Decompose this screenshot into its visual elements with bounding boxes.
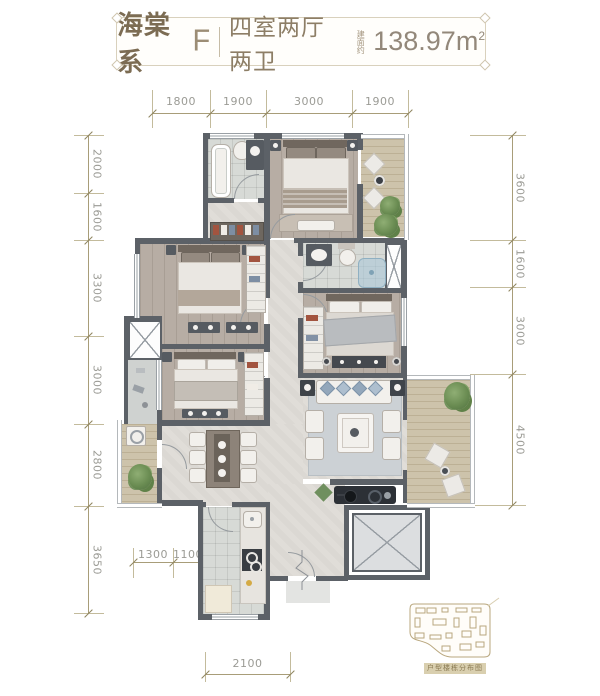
wardrobe-item bbox=[306, 335, 318, 341]
tv-console bbox=[332, 356, 386, 368]
bed-headboard bbox=[174, 352, 236, 359]
closet-item bbox=[253, 225, 259, 235]
wall bbox=[203, 203, 208, 243]
dim-label-right-2: 3000 bbox=[514, 316, 527, 346]
wardrobe-item bbox=[247, 384, 258, 390]
bed-blanket bbox=[323, 315, 397, 347]
utility-item bbox=[142, 402, 148, 408]
toilet bbox=[339, 249, 356, 266]
plate bbox=[218, 455, 226, 463]
balcony-rail bbox=[407, 503, 475, 508]
dim-extension bbox=[210, 90, 211, 128]
wardrobe-item bbox=[306, 315, 318, 321]
closet-item bbox=[213, 225, 219, 235]
bed-bench bbox=[297, 220, 335, 231]
refrigerator bbox=[205, 585, 232, 613]
balcony-rail bbox=[117, 503, 162, 508]
dim-label-right-3: 4500 bbox=[514, 425, 527, 455]
wall bbox=[357, 184, 363, 240]
dim-line-top bbox=[152, 113, 408, 114]
table-tray bbox=[350, 428, 359, 437]
dim-label-top-2: 3000 bbox=[294, 95, 324, 108]
window bbox=[282, 133, 344, 139]
wall bbox=[203, 502, 206, 507]
wall bbox=[258, 614, 270, 620]
dining-chair bbox=[240, 450, 257, 465]
stool bbox=[322, 357, 331, 366]
plate bbox=[218, 469, 226, 477]
nightstand bbox=[166, 245, 176, 255]
key-plan-inset bbox=[400, 596, 500, 668]
dim-label-left-3: 3000 bbox=[91, 365, 104, 395]
armchair bbox=[305, 437, 324, 460]
dining-chair bbox=[240, 432, 257, 447]
dim-extension bbox=[290, 652, 291, 682]
wall bbox=[268, 576, 288, 581]
bed-blanket bbox=[174, 381, 238, 401]
nightstand bbox=[270, 140, 281, 151]
stool bbox=[392, 357, 401, 366]
bed-headboard bbox=[178, 245, 240, 252]
wall bbox=[264, 324, 270, 349]
window bbox=[156, 358, 162, 410]
master-bed-throw bbox=[283, 188, 347, 208]
utility-item bbox=[136, 368, 145, 373]
dim-extension bbox=[470, 240, 526, 241]
balcony-rail bbox=[117, 420, 122, 508]
closet-item bbox=[245, 225, 251, 235]
storage-bench bbox=[188, 322, 220, 333]
window bbox=[212, 614, 258, 620]
dim-label-bottom-0: 2100 bbox=[233, 657, 263, 670]
dim-label-bottom-upper-0: 1300 bbox=[138, 548, 168, 561]
unit-code: F bbox=[193, 24, 211, 59]
dim-line-bottom-upper bbox=[133, 562, 203, 563]
title-banner: 海棠系 F 四室两厅两卫 建面约 138.97m2 bbox=[116, 17, 486, 66]
dim-line-bottom bbox=[205, 674, 290, 675]
wardrobe-item bbox=[247, 362, 258, 368]
master-bed-headboard bbox=[283, 140, 347, 147]
armchair bbox=[382, 410, 401, 433]
dim-extension bbox=[352, 90, 353, 128]
dim-extension bbox=[470, 505, 526, 506]
window bbox=[134, 254, 140, 318]
balcony-rail bbox=[407, 375, 475, 380]
elevator-shaft bbox=[352, 513, 422, 572]
balcony-table bbox=[374, 175, 385, 186]
sink-basin bbox=[311, 249, 327, 261]
dim-extension bbox=[470, 287, 526, 288]
side-table bbox=[300, 380, 315, 396]
dim-label-left-2: 3300 bbox=[91, 273, 104, 303]
wall bbox=[303, 373, 407, 378]
bed-throw bbox=[178, 290, 240, 306]
bed-duvet bbox=[178, 262, 242, 314]
balcony-rail bbox=[361, 134, 409, 139]
wardrobe-item bbox=[249, 256, 260, 262]
wall bbox=[160, 500, 203, 506]
wall bbox=[264, 378, 270, 424]
bed-headboard bbox=[326, 294, 392, 301]
area-prefix: 建面约 bbox=[356, 30, 364, 54]
wall bbox=[157, 420, 270, 426]
kettle bbox=[246, 580, 252, 586]
wall bbox=[198, 614, 212, 620]
window bbox=[210, 133, 254, 139]
wall bbox=[330, 479, 407, 485]
dim-label-top-3: 1900 bbox=[365, 95, 395, 108]
break-line-symbol bbox=[294, 550, 310, 590]
title-divider bbox=[219, 27, 220, 57]
closet-item bbox=[229, 225, 235, 235]
dim-label-left-5: 3650 bbox=[91, 545, 104, 575]
dim-label-right-1: 1600 bbox=[514, 249, 527, 279]
plant bbox=[380, 196, 400, 216]
area-unit: m bbox=[456, 26, 479, 56]
series-name: 海棠系 bbox=[117, 5, 184, 79]
stove bbox=[242, 549, 262, 571]
kitchen-sink bbox=[243, 511, 262, 528]
area-value: 138.97m2 bbox=[373, 26, 485, 57]
nightstand bbox=[347, 140, 358, 151]
wall bbox=[298, 240, 303, 256]
dining-chair bbox=[189, 450, 206, 465]
dim-label-left-1: 1600 bbox=[91, 202, 104, 232]
dim-extension bbox=[266, 90, 267, 128]
sink-basin bbox=[250, 146, 260, 156]
nightstand bbox=[162, 352, 172, 362]
ac-platform-shaft bbox=[128, 320, 162, 360]
wall bbox=[425, 505, 430, 580]
wall bbox=[162, 344, 270, 349]
balcony-table bbox=[440, 466, 450, 476]
dining-chair bbox=[189, 468, 206, 483]
storage-bench bbox=[226, 322, 258, 333]
wall bbox=[157, 424, 162, 440]
armchair bbox=[382, 437, 401, 460]
floor-plan-page: 海棠系 F 四室两厅两卫 建面约 138.97m2 18001900300019… bbox=[0, 0, 600, 696]
closet-item bbox=[237, 225, 243, 235]
washing-machine bbox=[126, 426, 146, 446]
plant bbox=[128, 464, 152, 490]
dim-extension bbox=[470, 135, 526, 136]
side-table bbox=[390, 380, 405, 396]
wall bbox=[344, 575, 430, 580]
layout-description: 四室两厅两卫 bbox=[229, 8, 347, 76]
cooktop-counter bbox=[334, 486, 396, 504]
bed-end-bench bbox=[182, 409, 228, 418]
wall bbox=[403, 470, 407, 503]
dining-chair bbox=[240, 468, 257, 483]
key-plan-caption: 户型楼栋分布图 bbox=[424, 663, 486, 674]
dim-label-right-0: 3600 bbox=[514, 173, 527, 203]
wall bbox=[157, 468, 162, 504]
closet-item bbox=[221, 225, 227, 235]
wall bbox=[203, 133, 208, 203]
area-exponent: 2 bbox=[478, 29, 485, 43]
balcony-rail bbox=[404, 134, 409, 240]
dim-label-top-1: 1900 bbox=[223, 95, 253, 108]
bathtub bbox=[211, 144, 231, 198]
dining-chair bbox=[189, 432, 206, 447]
armchair bbox=[305, 410, 324, 433]
plant bbox=[374, 214, 398, 236]
wall bbox=[135, 238, 140, 254]
plant bbox=[444, 382, 470, 410]
shower bbox=[358, 258, 386, 288]
dim-extension bbox=[152, 90, 153, 128]
dim-extension bbox=[470, 374, 526, 375]
dim-extension bbox=[205, 652, 206, 682]
banner-corner-ornament bbox=[479, 59, 490, 70]
duct-shaft bbox=[385, 243, 403, 290]
area-number: 138.97 bbox=[373, 26, 456, 56]
dim-extension bbox=[408, 90, 409, 128]
balcony-rail bbox=[470, 375, 475, 508]
banner-corner-ornament bbox=[479, 12, 490, 23]
wardrobe-item bbox=[249, 276, 260, 282]
wall bbox=[344, 505, 349, 580]
window bbox=[401, 298, 407, 346]
dim-line-left bbox=[88, 135, 89, 613]
wall bbox=[258, 198, 265, 203]
wall bbox=[198, 502, 203, 620]
plate bbox=[218, 441, 226, 449]
dim-label-top-0: 1800 bbox=[166, 95, 196, 108]
dim-label-left-0: 2000 bbox=[91, 149, 104, 179]
dim-label-left-4: 2800 bbox=[91, 450, 104, 480]
